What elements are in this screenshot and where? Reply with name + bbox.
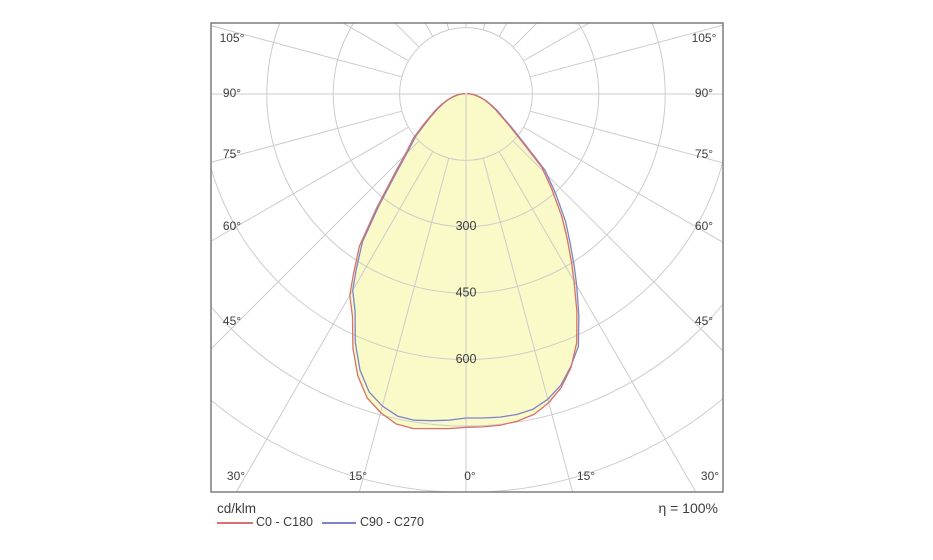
angle-label-right-90°: 90° xyxy=(695,86,713,100)
angle-label-bottom-3: 15° xyxy=(577,469,595,483)
angle-label-right-75°: 75° xyxy=(695,147,713,161)
angle-label-left-90°: 90° xyxy=(223,86,241,100)
angle-label-bottom-4: 30° xyxy=(701,469,719,483)
intensity-ring-label-300: 300 xyxy=(456,219,477,233)
units-label: cd/klm xyxy=(217,501,256,516)
angle-label-right-60°: 60° xyxy=(695,219,713,233)
angle-label-bottom-1: 15° xyxy=(349,469,367,483)
legend-line-c0-c180 xyxy=(217,522,253,524)
angle-label-left-105°: 105° xyxy=(220,31,245,45)
angle-label-left-75°: 75° xyxy=(223,147,241,161)
photometric-diagram-page: 105°105°90°90°75°75°60°60°45°45°30°15°0°… xyxy=(0,0,933,560)
intensity-ring-label-450: 450 xyxy=(456,285,477,299)
angle-label-right-45°: 45° xyxy=(695,314,713,328)
angle-label-left-60°: 60° xyxy=(223,219,241,233)
intensity-ring-label-600: 600 xyxy=(456,352,477,366)
legend-label-c90-c270: C90 - C270 xyxy=(360,515,424,529)
efficiency-label: η = 100% xyxy=(640,500,718,516)
angle-label-bottom-0: 30° xyxy=(227,469,245,483)
angle-label-right-105°: 105° xyxy=(692,31,717,45)
angle-label-bottom-2: 0° xyxy=(464,469,476,483)
angle-label-left-45°: 45° xyxy=(223,314,241,328)
legend-line-c90-c270 xyxy=(322,522,356,524)
legend-label-c0-c180: C0 - C180 xyxy=(256,515,313,529)
polar-light-distribution-chart: 105°105°90°90°75°75°60°60°45°45°30°15°0°… xyxy=(0,0,933,560)
